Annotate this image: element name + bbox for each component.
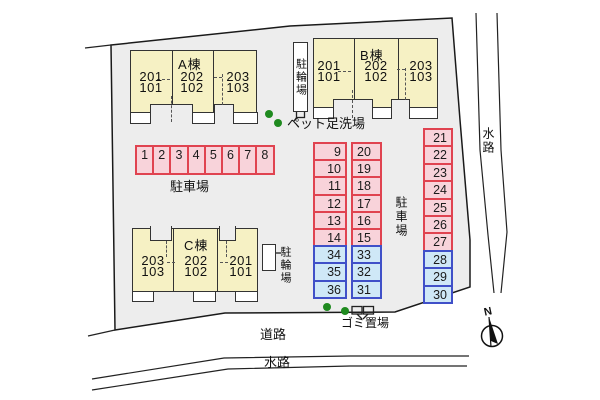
parking-lot-label-east: 駐車場	[394, 196, 408, 241]
entrance-notch	[219, 226, 236, 241]
unit-divider	[213, 51, 214, 112]
porch	[371, 107, 393, 119]
parking-stall-number: 13	[327, 214, 341, 228]
unit-numbers: 202 102	[172, 71, 212, 93]
parking-stall-number: 35	[327, 265, 341, 279]
unit-lower: 103	[218, 82, 258, 93]
parking-stall-number: 14	[327, 231, 341, 245]
tree-dot	[265, 110, 273, 118]
unit-lower: 101	[221, 266, 261, 277]
waterway-south-label: 水路	[264, 356, 290, 370]
boundary-extension-top-left	[85, 45, 111, 48]
entrance-notch	[391, 99, 410, 119]
unit-numbers: 202 102	[176, 255, 216, 277]
porch	[130, 112, 151, 124]
parking-stall-number: 19	[357, 162, 371, 176]
parking-stall-number: 16	[357, 214, 371, 228]
parking-stall-number: 7	[244, 148, 251, 162]
bicycle-parking-c-label: 駐輪場	[278, 246, 292, 288]
parking-stall-36: 36	[313, 280, 347, 299]
porch	[132, 291, 154, 302]
parking-stall-number: 8	[261, 148, 268, 162]
parking-lot-east-text: 駐車場	[394, 196, 408, 238]
parking-stall-number: 15	[357, 231, 371, 245]
unit-lower: 101	[309, 71, 349, 82]
parking-stall-number: 20	[357, 145, 371, 159]
parking-stall-30: 30	[423, 285, 453, 304]
parking-column-9-14-34-36: 91011121314343536	[313, 142, 347, 299]
unit-numbers: 201 101	[131, 71, 171, 93]
parking-stall-number: 3	[175, 148, 182, 162]
parking-stall-number: 34	[327, 248, 341, 262]
unit-divider	[354, 39, 355, 107]
parking-stall-number: 9	[334, 145, 341, 159]
compass-icon	[482, 317, 503, 347]
parking-column-21-30: 21222324252627282930	[423, 128, 453, 304]
unit-lower: 103	[401, 71, 441, 82]
parking-stall-number: 11	[328, 179, 341, 193]
garbage-area-label: ゴミ置場	[341, 316, 389, 330]
parking-stall-31: 31	[351, 280, 382, 299]
parking-stall-number: 10	[327, 162, 341, 176]
unit-lower: 103	[133, 266, 173, 277]
parking-stall-number: 36	[327, 283, 341, 297]
bicycle-parking-c-text: 駐輪場	[278, 246, 292, 285]
porch	[193, 291, 216, 302]
unit-numbers: 203 103	[133, 255, 173, 277]
pet-foot-wash-label: ペット足洗場	[287, 117, 365, 131]
road-label: 道路	[260, 328, 286, 342]
unit-lower: 102	[176, 266, 216, 277]
unit-numbers: 201 101	[309, 60, 349, 82]
parking-column-20-15-33-31: 201918171615333231	[351, 142, 382, 299]
building-c-label: C棟	[184, 235, 208, 254]
tree-dot	[274, 119, 282, 127]
unit-divider	[173, 229, 174, 291]
parking-stall-number: 21	[433, 131, 447, 145]
waterway-east-label: 水路	[481, 127, 495, 158]
unit-divider	[217, 229, 218, 291]
parking-stall-number: 2	[158, 148, 165, 162]
parking-stall-number: 22	[433, 148, 447, 162]
porch	[235, 291, 258, 302]
parking-stall-number: 18	[357, 179, 371, 193]
entrance-notch	[150, 226, 172, 241]
parking-stall-number: 12	[327, 197, 341, 211]
parking-stall-number: 31	[357, 283, 371, 297]
porch	[192, 112, 216, 124]
parking-stall-number: 5	[210, 148, 217, 162]
unit-numbers: 202 102	[356, 60, 396, 82]
parking-stall-8: 8	[255, 145, 274, 175]
parking-stall-number: 27	[433, 235, 447, 249]
entrance-notch	[214, 104, 234, 124]
unit-numbers: 203 103	[401, 60, 441, 82]
unit-numbers: 203 103	[218, 71, 258, 93]
unit-lower: 102	[172, 82, 212, 93]
parking-stall-number: 30	[433, 288, 447, 302]
entry-dash	[352, 90, 353, 118]
parking-stall-number: 25	[433, 201, 447, 215]
unit-lower: 101	[131, 82, 171, 93]
east-waterway-east-bank	[497, 13, 507, 293]
tree-dot	[341, 307, 349, 315]
bicycle-parking-ab-label: 駐輪場	[293, 58, 309, 97]
waterway-east-text: 水路	[481, 127, 495, 155]
porch	[233, 112, 258, 124]
road-edge-extension	[88, 330, 115, 336]
parking-stall-number: 33	[357, 248, 371, 262]
unit-lower: 102	[356, 71, 396, 82]
parking-lot-label-front: 駐車場	[170, 180, 209, 194]
parking-stall-number: 26	[433, 218, 447, 232]
unit-numbers: 201 101	[221, 255, 261, 277]
porch	[409, 107, 438, 119]
tree-dot	[323, 303, 331, 311]
parking-row-1-8: 12345678	[135, 145, 275, 175]
unit-divider	[398, 39, 399, 107]
parking-stall-number: 32	[357, 265, 371, 279]
bicycle-parking-c	[262, 244, 276, 271]
parking-stall-number: 17	[357, 197, 371, 211]
parking-stall-number: 29	[433, 270, 447, 284]
bicycle-parking-ab: 駐輪場	[293, 42, 308, 112]
parking-stall-number: 28	[433, 253, 447, 267]
parking-stall-number: 23	[433, 166, 447, 180]
site-plan: A棟 201 101 202 102 203 103 B棟 201 101 20…	[0, 0, 600, 400]
parking-stall-number: 6	[227, 148, 234, 162]
parking-stall-number: 24	[433, 183, 447, 197]
parking-stall-number: 1	[141, 148, 148, 162]
parking-stall-number: 4	[193, 148, 200, 162]
entry-dash	[171, 96, 172, 122]
